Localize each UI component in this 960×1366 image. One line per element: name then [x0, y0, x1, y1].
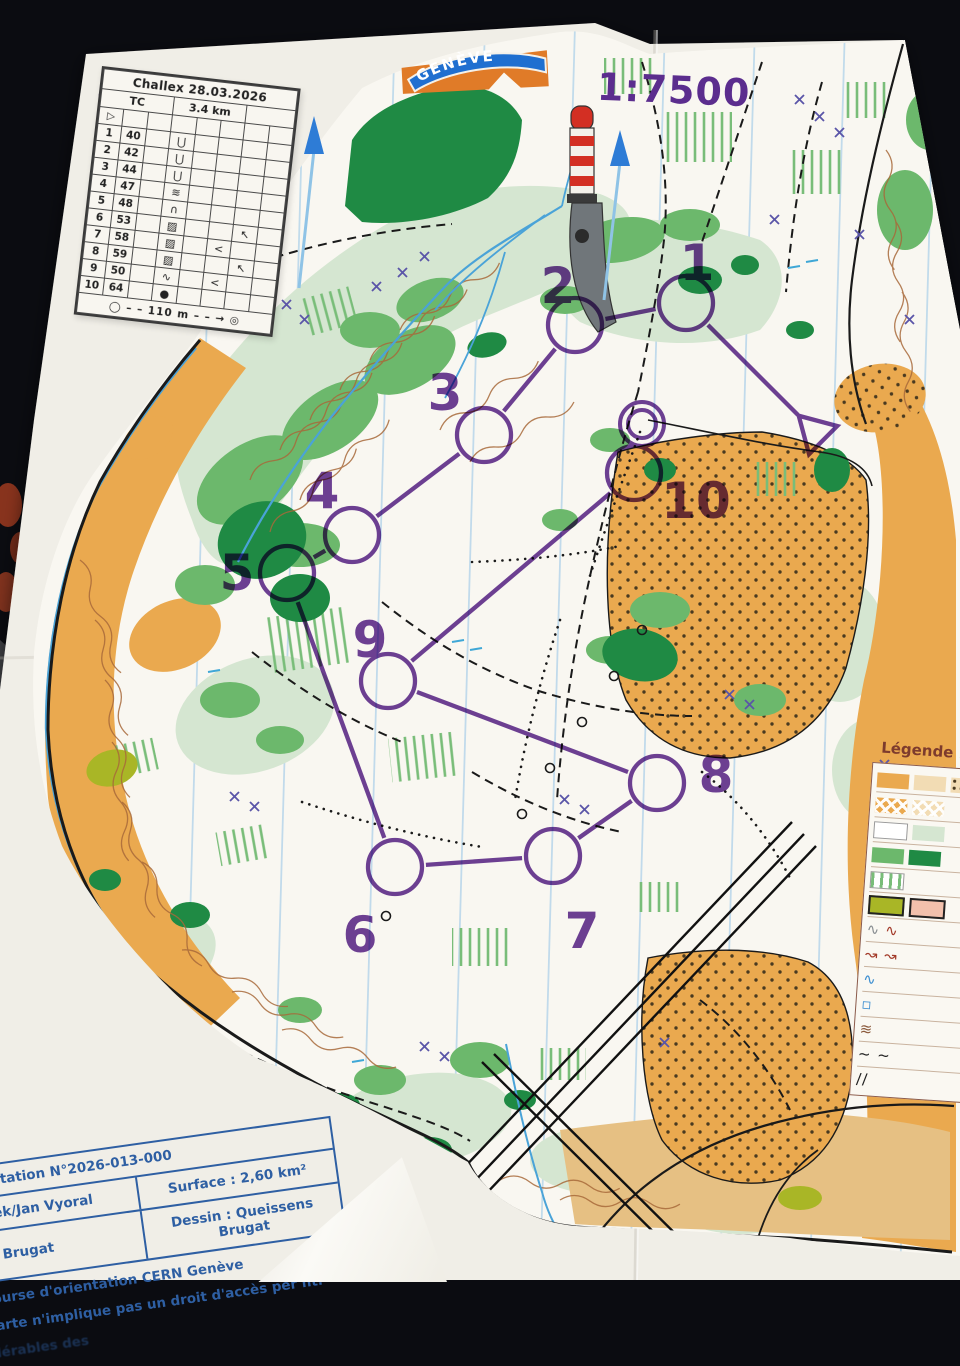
finish-glyph: ◎	[229, 314, 240, 327]
legend-color-swatch	[914, 774, 947, 791]
legend-color-swatch	[912, 799, 945, 816]
legend-symbol-swatch: ↝ ↝	[864, 946, 898, 963]
control-description-card: Challex 28.03.2026 TC 3.4 km ▷140⋃242⋃34…	[74, 66, 301, 337]
legend-symbol-swatch: ∿	[866, 921, 881, 937]
club-logo: GENÈVE	[397, 42, 556, 106]
control-number-10: 10	[661, 472, 731, 530]
legend-symbol-swatch: ≋	[859, 1021, 874, 1037]
finish-distance: 110 m	[147, 304, 190, 321]
legend-color-swatch	[912, 824, 945, 841]
map-scale-label: 1:7500	[596, 65, 751, 116]
legend-symbol-swatch: ∿	[863, 971, 878, 987]
legend-color-swatch	[868, 895, 905, 916]
legend-color-swatch	[873, 821, 908, 840]
legend-color-swatch	[909, 897, 946, 918]
legend-color-swatch	[871, 847, 904, 864]
control-number-7: 7	[565, 902, 600, 960]
control-number-9: 9	[353, 611, 388, 669]
legend-color-swatch	[870, 871, 905, 890]
legend-color-swatch	[908, 849, 941, 866]
legend-symbol-swatch: ▫	[861, 996, 873, 1012]
legend-color-swatch	[950, 777, 960, 794]
finish-arrow: →	[215, 312, 226, 325]
legend-row: //	[855, 1067, 960, 1102]
control-number-5: 5	[220, 544, 255, 602]
control-number-6: 6	[343, 906, 378, 964]
control-number-2: 2	[541, 257, 576, 315]
start-glyph: ◯	[108, 300, 122, 313]
legend-color-swatch	[875, 797, 908, 814]
legend-color-swatch	[877, 772, 910, 789]
control-number-3: 3	[428, 364, 463, 422]
legend-symbol-swatch: //	[856, 1071, 869, 1087]
control-number-8: 8	[699, 746, 734, 804]
control-number-4: 4	[305, 462, 340, 520]
legend-symbol-swatch: ∿	[885, 923, 900, 939]
legend-symbol-swatch: ~ ~	[857, 1046, 891, 1063]
control-number-1: 1	[680, 234, 715, 292]
